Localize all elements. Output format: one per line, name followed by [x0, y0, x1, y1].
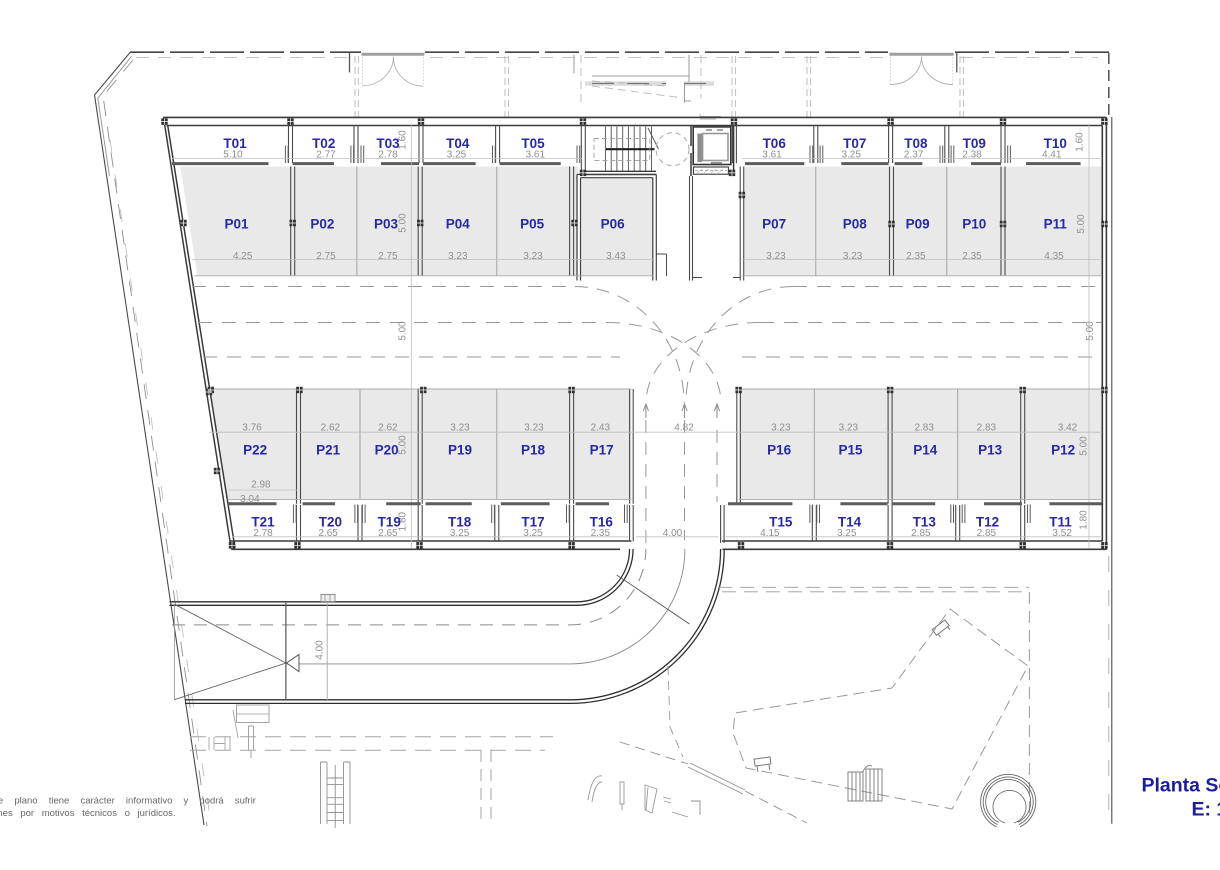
svg-text:2.65: 2.65 [378, 528, 398, 539]
svg-text:4.35: 4.35 [1044, 251, 1064, 262]
svg-text:P20: P20 [375, 443, 399, 458]
svg-text:P21: P21 [316, 443, 341, 458]
svg-text:T03: T03 [376, 136, 400, 151]
svg-text:2.83: 2.83 [977, 423, 997, 434]
svg-text:2.65: 2.65 [318, 528, 338, 539]
svg-text:1.80: 1.80 [1078, 510, 1089, 530]
svg-text:3.42: 3.42 [1058, 423, 1078, 434]
svg-text:2.78: 2.78 [378, 150, 398, 161]
svg-text:2.62: 2.62 [378, 423, 398, 434]
svg-text:2.85: 2.85 [911, 528, 931, 539]
svg-text:2.43: 2.43 [591, 423, 611, 434]
svg-text:P18: P18 [521, 443, 546, 458]
svg-text:3.23: 3.23 [771, 423, 791, 434]
svg-text:T10: T10 [1044, 136, 1067, 151]
svg-text:2.83: 2.83 [914, 423, 934, 434]
svg-text:P06: P06 [601, 217, 626, 232]
svg-text:P05: P05 [520, 217, 545, 232]
svg-text:3.76: 3.76 [242, 423, 262, 434]
svg-text:3.23: 3.23 [839, 423, 859, 434]
svg-text:P02: P02 [310, 217, 334, 232]
svg-text:3.25: 3.25 [837, 528, 857, 539]
svg-text:2.78: 2.78 [253, 528, 273, 539]
svg-text:T06: T06 [763, 136, 787, 151]
svg-text:T02: T02 [312, 136, 335, 151]
svg-text:5.00: 5.00 [1076, 214, 1087, 234]
svg-text:P13: P13 [978, 443, 1003, 458]
svg-text:P09: P09 [906, 217, 930, 232]
svg-text:P17: P17 [590, 443, 614, 458]
svg-text:P01: P01 [224, 217, 249, 232]
svg-text:3.25: 3.25 [450, 528, 470, 539]
svg-text:3.52: 3.52 [1052, 528, 1072, 539]
svg-text:5.00: 5.00 [398, 321, 409, 341]
svg-text:2.37: 2.37 [904, 150, 924, 161]
svg-text:T08: T08 [904, 136, 928, 151]
svg-text:4.82: 4.82 [674, 423, 694, 434]
svg-text:P15: P15 [838, 443, 863, 458]
svg-text:3.25: 3.25 [841, 150, 861, 161]
svg-text:3.23: 3.23 [843, 251, 863, 262]
svg-text:2.77: 2.77 [316, 150, 336, 161]
svg-text:iones por motivos técnicos o j: iones por motivos técnicos o jurídicos. [0, 808, 176, 819]
svg-text:2.38: 2.38 [962, 150, 982, 161]
svg-text:P04: P04 [446, 217, 471, 232]
svg-text:T05: T05 [521, 136, 545, 151]
svg-text:E: 1/100: E: 1/100 [1192, 799, 1220, 821]
svg-text:2.35: 2.35 [962, 251, 982, 262]
svg-text:3.25: 3.25 [447, 150, 467, 161]
svg-text:P22: P22 [243, 443, 267, 458]
svg-text:2.35: 2.35 [906, 251, 926, 262]
svg-text:3.25: 3.25 [523, 528, 543, 539]
svg-text:5.10: 5.10 [223, 150, 243, 161]
svg-text:P19: P19 [448, 443, 472, 458]
svg-text:5.00: 5.00 [1078, 436, 1089, 456]
svg-text:2.98: 2.98 [251, 480, 271, 491]
svg-text:T07: T07 [843, 136, 866, 151]
svg-text:2.75: 2.75 [316, 251, 336, 262]
svg-text:3.23: 3.23 [766, 251, 786, 262]
svg-text:3.61: 3.61 [526, 150, 546, 161]
svg-text:P12: P12 [1051, 443, 1075, 458]
svg-text:1.60: 1.60 [1075, 132, 1086, 152]
svg-text:3.23: 3.23 [450, 423, 470, 434]
svg-text:4.00: 4.00 [663, 528, 683, 539]
svg-text:2.85: 2.85 [977, 528, 997, 539]
svg-text:4.00: 4.00 [315, 640, 326, 660]
svg-text:2.35: 2.35 [591, 528, 611, 539]
svg-text:P10: P10 [962, 217, 986, 232]
svg-text:P08: P08 [843, 217, 868, 232]
svg-text:3.23: 3.23 [448, 251, 468, 262]
svg-text:P14: P14 [913, 443, 938, 458]
svg-text:T01: T01 [223, 136, 247, 151]
svg-text:5.00: 5.00 [398, 435, 409, 455]
svg-text:5.00: 5.00 [1085, 321, 1096, 341]
svg-text:4.15: 4.15 [760, 528, 780, 539]
svg-text:5.00: 5.00 [398, 213, 409, 233]
svg-text:P11: P11 [1044, 217, 1068, 232]
svg-text:1.60: 1.60 [398, 130, 409, 150]
svg-text:2.62: 2.62 [321, 423, 341, 434]
svg-text:3.61: 3.61 [762, 150, 782, 161]
svg-text:3.43: 3.43 [606, 251, 626, 262]
svg-text:T04: T04 [446, 136, 470, 151]
svg-text:3.23: 3.23 [524, 423, 544, 434]
svg-text:T09: T09 [963, 136, 986, 151]
svg-text:P07: P07 [762, 217, 786, 232]
svg-text:Planta Sótano: Planta Sótano [1142, 775, 1220, 797]
svg-text:3.23: 3.23 [523, 251, 543, 262]
svg-text:4.25: 4.25 [233, 251, 253, 262]
svg-text:4.41: 4.41 [1042, 150, 1062, 161]
svg-text:P16: P16 [767, 443, 792, 458]
svg-text:nte plano tiene carácter infor: nte plano tiene carácter informativo y p… [0, 796, 256, 807]
svg-text:2.75: 2.75 [378, 251, 398, 262]
svg-text:P03: P03 [374, 217, 399, 232]
